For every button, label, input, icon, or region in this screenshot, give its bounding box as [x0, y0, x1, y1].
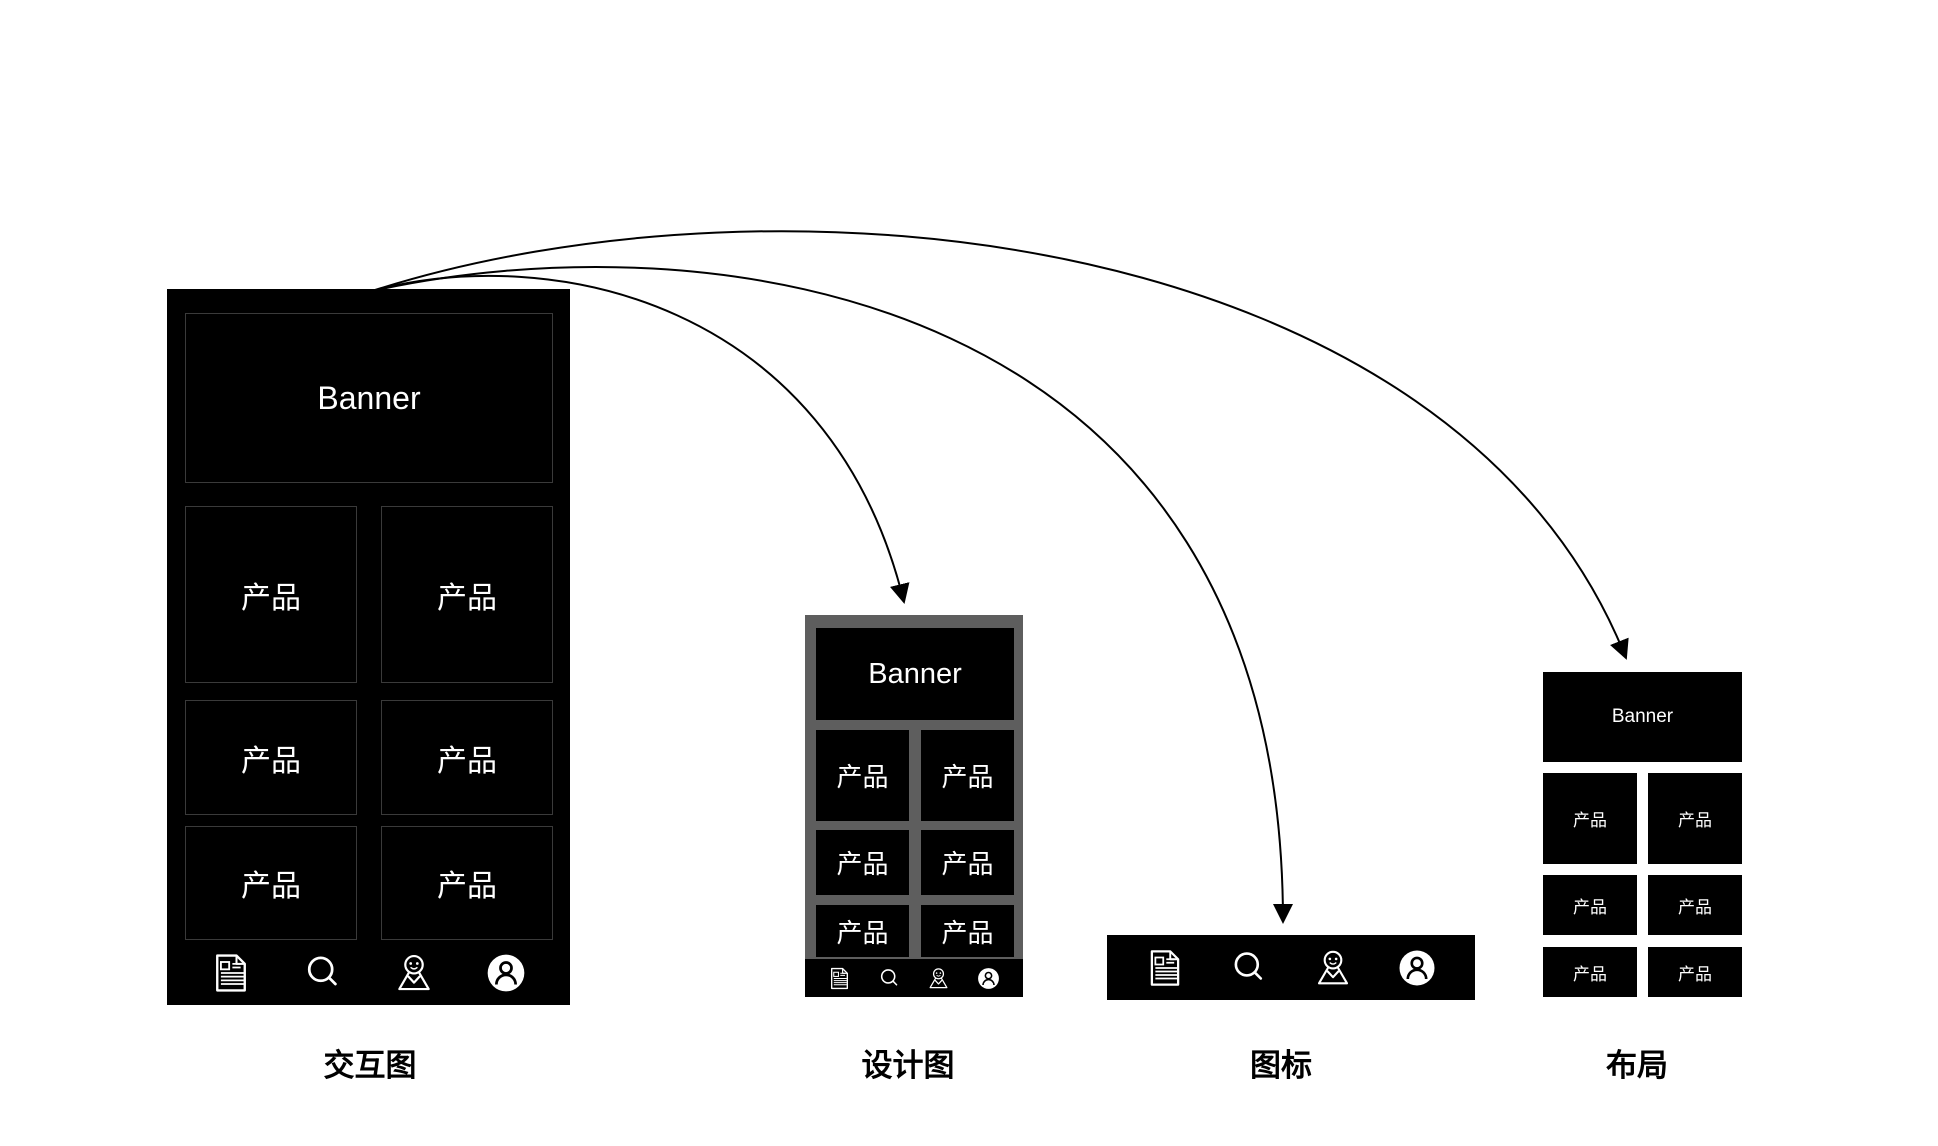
product-cell: 产品: [1543, 875, 1637, 935]
search-icon: [877, 966, 902, 991]
user-icon: [976, 966, 1001, 991]
banner-block: Banner: [185, 313, 553, 483]
banner-label: Banner: [868, 658, 962, 691]
banner-label: Banner: [1612, 706, 1673, 728]
banner-block: Banner: [816, 628, 1014, 720]
map-pin-mascot-icon: [1312, 947, 1354, 989]
product-cell: 产品: [816, 730, 909, 821]
map-pin-mascot-icon: [926, 966, 951, 991]
search-icon: [301, 951, 345, 995]
user-icon: [1396, 947, 1438, 989]
map-pin-mascot-icon: [392, 951, 436, 995]
document-icon: [209, 951, 253, 995]
product-cell: 产品: [1648, 947, 1742, 997]
caption-icons: 图标: [1250, 1040, 1312, 1085]
user-icon: [484, 951, 528, 995]
product-cell: 产品: [1648, 875, 1742, 935]
product-cell: 产品: [185, 700, 357, 815]
interaction-mockup: Banner 产品 产品 产品 产品 产品 产品: [167, 289, 570, 1005]
caption-interaction: 交互图: [324, 1040, 417, 1085]
document-icon: [1144, 947, 1186, 989]
product-cell: 产品: [1543, 773, 1637, 864]
design-mockup: Banner 产品 产品 产品 产品 产品 产品: [805, 615, 1023, 997]
product-cell: 产品: [921, 830, 1014, 895]
tab-bar: [805, 959, 1023, 997]
product-cell: 产品: [381, 506, 553, 683]
product-cell: 产品: [921, 905, 1014, 957]
layout-mockup: Banner 产品 产品 产品 产品 产品 产品: [1543, 672, 1742, 997]
document-icon: [827, 966, 852, 991]
banner-block: Banner: [1543, 672, 1742, 762]
product-cell: 产品: [921, 730, 1014, 821]
search-icon: [1228, 947, 1270, 989]
product-cell: 产品: [381, 700, 553, 815]
diagram-canvas: Banner 产品 产品 产品 产品 产品 产品 交互图 Banner 产品 产…: [0, 0, 1938, 1146]
product-cell: 产品: [185, 506, 357, 683]
product-cell: 产品: [1648, 773, 1742, 864]
product-cell: 产品: [816, 830, 909, 895]
product-cell: 产品: [1543, 947, 1637, 997]
product-cell: 产品: [381, 826, 553, 940]
product-cell: 产品: [185, 826, 357, 940]
banner-label: Banner: [317, 380, 420, 417]
product-cell: 产品: [816, 905, 909, 957]
tab-bar: [167, 941, 570, 1005]
caption-layout: 布局: [1606, 1040, 1668, 1085]
icons-bar: [1107, 935, 1475, 1000]
caption-design: 设计图: [862, 1040, 955, 1085]
